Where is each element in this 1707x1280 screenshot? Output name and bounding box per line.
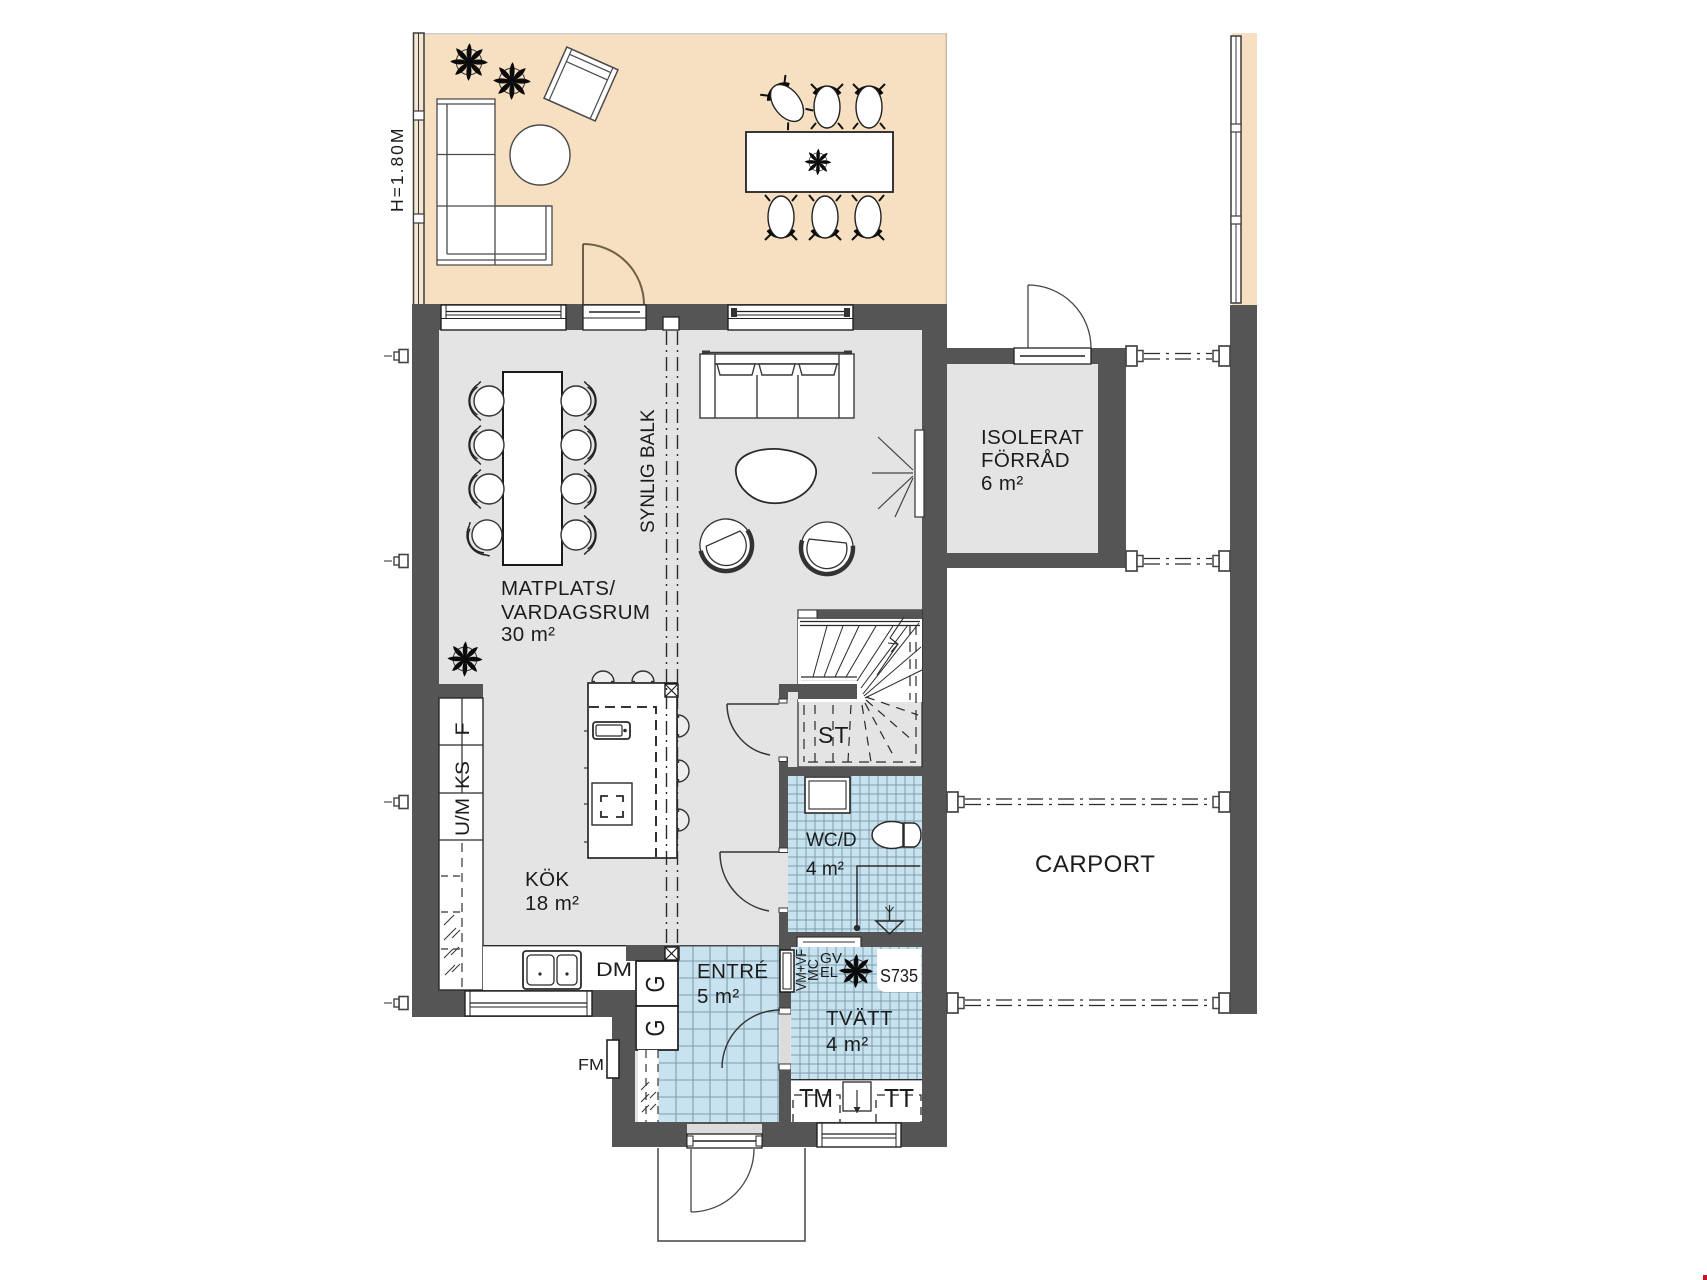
svg-text:TT: TT <box>884 1083 914 1113</box>
svg-text:SYNLIG BALK: SYNLIG BALK <box>638 409 659 533</box>
svg-text:30 m²: 30 m² <box>501 623 555 646</box>
svg-text:MATPLATS/: MATPLATS/ <box>501 577 615 600</box>
svg-text:5 m²: 5 m² <box>697 985 740 1008</box>
svg-text:4 m²: 4 m² <box>826 1033 869 1056</box>
svg-text:TVÄTT: TVÄTT <box>826 1007 893 1030</box>
svg-text:ST: ST <box>818 722 849 748</box>
svg-text:VARDAGSRUM: VARDAGSRUM <box>501 601 650 624</box>
svg-text:FÖRRÅD: FÖRRÅD <box>981 449 1070 472</box>
svg-text:F: F <box>453 723 474 736</box>
svg-text:ENTRÉ: ENTRÉ <box>697 960 768 983</box>
svg-text:WC/D: WC/D <box>806 830 857 851</box>
svg-text:H=1.80M: H=1.80M <box>387 127 407 213</box>
svg-text:ISOLERAT: ISOLERAT <box>981 426 1084 449</box>
svg-text:DM: DM <box>596 960 632 981</box>
svg-text:U/M: U/M <box>453 798 474 836</box>
svg-text:18 m²: 18 m² <box>525 892 579 915</box>
svg-text:G: G <box>640 976 670 993</box>
svg-text:G: G <box>640 1020 670 1037</box>
svg-text:FM: FM <box>578 1057 604 1074</box>
svg-text:4 m²: 4 m² <box>806 859 844 880</box>
svg-text:CARPORT: CARPORT <box>1035 851 1155 878</box>
svg-text:KÖK: KÖK <box>525 868 570 891</box>
svg-text:KS: KS <box>453 761 474 789</box>
svg-text:6 m²: 6 m² <box>981 472 1024 495</box>
svg-text:TM: TM <box>799 1083 833 1113</box>
svg-text:S735: S735 <box>880 966 918 986</box>
svg-text:EL: EL <box>820 964 838 981</box>
